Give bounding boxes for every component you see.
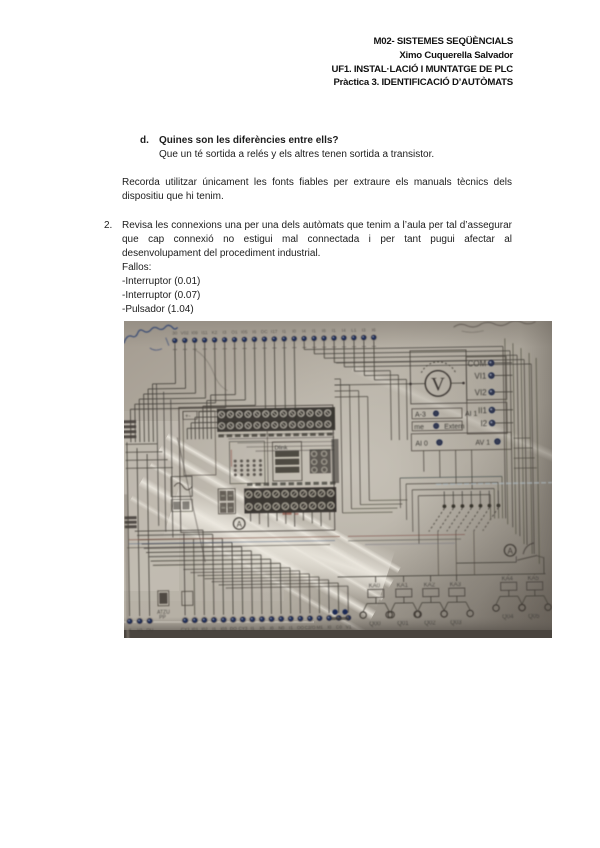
svg-text:V02: V02 — [181, 330, 190, 335]
svg-text:I3: I3 — [362, 328, 366, 333]
svg-text:II1: II1 — [478, 406, 488, 415]
svg-text:CY1: CY1 — [181, 627, 190, 632]
svg-text:I1: I1 — [332, 328, 336, 333]
svg-text:I3: I3 — [223, 330, 227, 335]
svg-text:AI 0: AI 0 — [415, 441, 428, 448]
svg-text:CY3: CY3 — [238, 626, 247, 631]
svg-text:L1: L1 — [351, 328, 357, 333]
svg-text:I6: I6 — [252, 329, 256, 334]
svg-text:I03: I03 — [221, 626, 228, 631]
svg-text:I6: I6 — [372, 327, 376, 332]
svg-text:30: 30 — [172, 331, 178, 336]
svg-text:I0: I0 — [327, 625, 331, 630]
svg-text:Dlink: Dlink — [274, 445, 287, 451]
svg-text:I1: I1 — [312, 328, 316, 333]
svg-text:V1: V1 — [137, 628, 143, 633]
svg-text:I1: I1 — [282, 329, 286, 334]
svg-text:DO: DO — [230, 626, 237, 631]
svg-text:M1: M1 — [316, 625, 323, 630]
svg-text:V: V — [431, 374, 445, 395]
svg-text:I0: I0 — [292, 329, 296, 334]
svg-text:Q05: Q05 — [528, 614, 540, 620]
svg-text:Q02: Q02 — [424, 620, 436, 626]
svg-text:me: me — [414, 424, 424, 431]
svg-text:V1: V1 — [346, 624, 352, 629]
svg-text:+-: +- — [185, 414, 191, 420]
svg-text:I11: I11 — [201, 330, 208, 335]
svg-text:KA3: KA3 — [450, 582, 462, 588]
svg-text:OU: OU — [146, 627, 153, 632]
svg-text:DC: DC — [261, 329, 268, 334]
svg-text:Q04: Q04 — [502, 614, 514, 620]
svg-text:I17: I17 — [271, 329, 278, 334]
svg-text:I0: I0 — [270, 626, 274, 631]
svg-text:VI2: VI2 — [475, 388, 488, 397]
svg-text:I05: I05 — [241, 329, 248, 334]
svg-text:Extern: Extern — [444, 424, 464, 431]
svg-text:I1: I1 — [212, 626, 216, 631]
svg-text:A-3: A-3 — [415, 412, 426, 419]
svg-text:KA4: KA4 — [502, 576, 514, 582]
svg-text:N0: N0 — [278, 625, 284, 630]
svg-text:AI 1: AI 1 — [465, 411, 478, 418]
svg-text:I2: I2 — [480, 419, 487, 428]
svg-text:C0: C0 — [336, 624, 342, 629]
svg-text:I4: I4 — [342, 328, 346, 333]
svg-text:I1: I1 — [289, 625, 293, 630]
svg-text:X5: X5 — [259, 626, 265, 631]
svg-text:I01: I01 — [192, 627, 199, 632]
svg-text:I4: I4 — [302, 328, 306, 333]
svg-text:COM: COM — [467, 359, 486, 368]
svg-text:KA5: KA5 — [528, 576, 540, 582]
svg-text:C2/O: C2/O — [305, 625, 316, 630]
svg-text:KA2: KA2 — [424, 582, 436, 588]
svg-text:VI1: VI1 — [474, 372, 487, 381]
svg-text:Q01: Q01 — [397, 621, 409, 627]
svg-text:KA0: KA0 — [369, 583, 381, 589]
svg-text:A: A — [507, 547, 513, 556]
svg-text:I09: I09 — [191, 330, 198, 335]
svg-text:KA1: KA1 — [397, 583, 409, 589]
svg-text:I1: I1 — [251, 626, 255, 631]
svg-text:I8: I8 — [322, 328, 326, 333]
svg-text:PP: PP — [159, 615, 166, 621]
svg-text:OO: OO — [297, 625, 305, 630]
svg-text:Q03: Q03 — [450, 620, 462, 626]
svg-text:AV 1: AV 1 — [475, 440, 490, 447]
svg-text:A: A — [236, 520, 242, 529]
svg-text:K2: K2 — [212, 330, 218, 335]
svg-text:Q00: Q00 — [369, 621, 381, 627]
svg-text:I02: I02 — [201, 627, 208, 632]
svg-text:O1: O1 — [231, 330, 238, 335]
